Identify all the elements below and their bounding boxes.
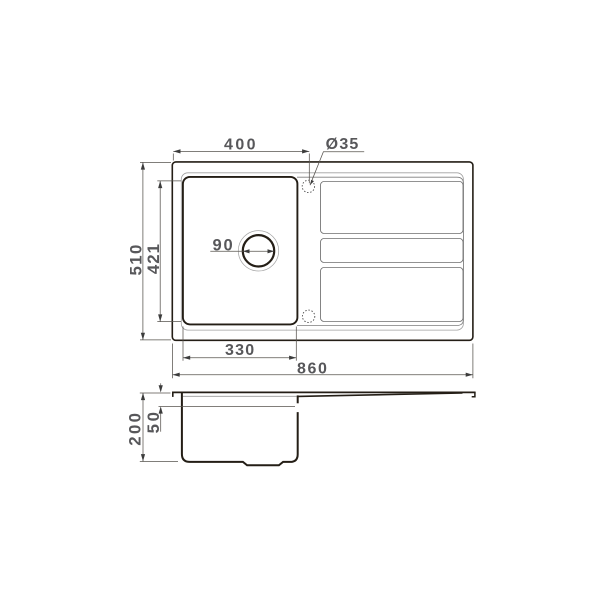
svg-text:400: 400 [224, 136, 258, 153]
svg-text:510: 510 [127, 243, 146, 275]
svg-text:Ø35: Ø35 [326, 136, 360, 153]
svg-text:421: 421 [144, 243, 163, 274]
svg-text:860: 860 [297, 361, 329, 378]
svg-text:90: 90 [213, 236, 235, 254]
svg-text:200: 200 [125, 411, 144, 446]
svg-text:50: 50 [144, 409, 163, 433]
svg-text:330: 330 [225, 342, 255, 359]
